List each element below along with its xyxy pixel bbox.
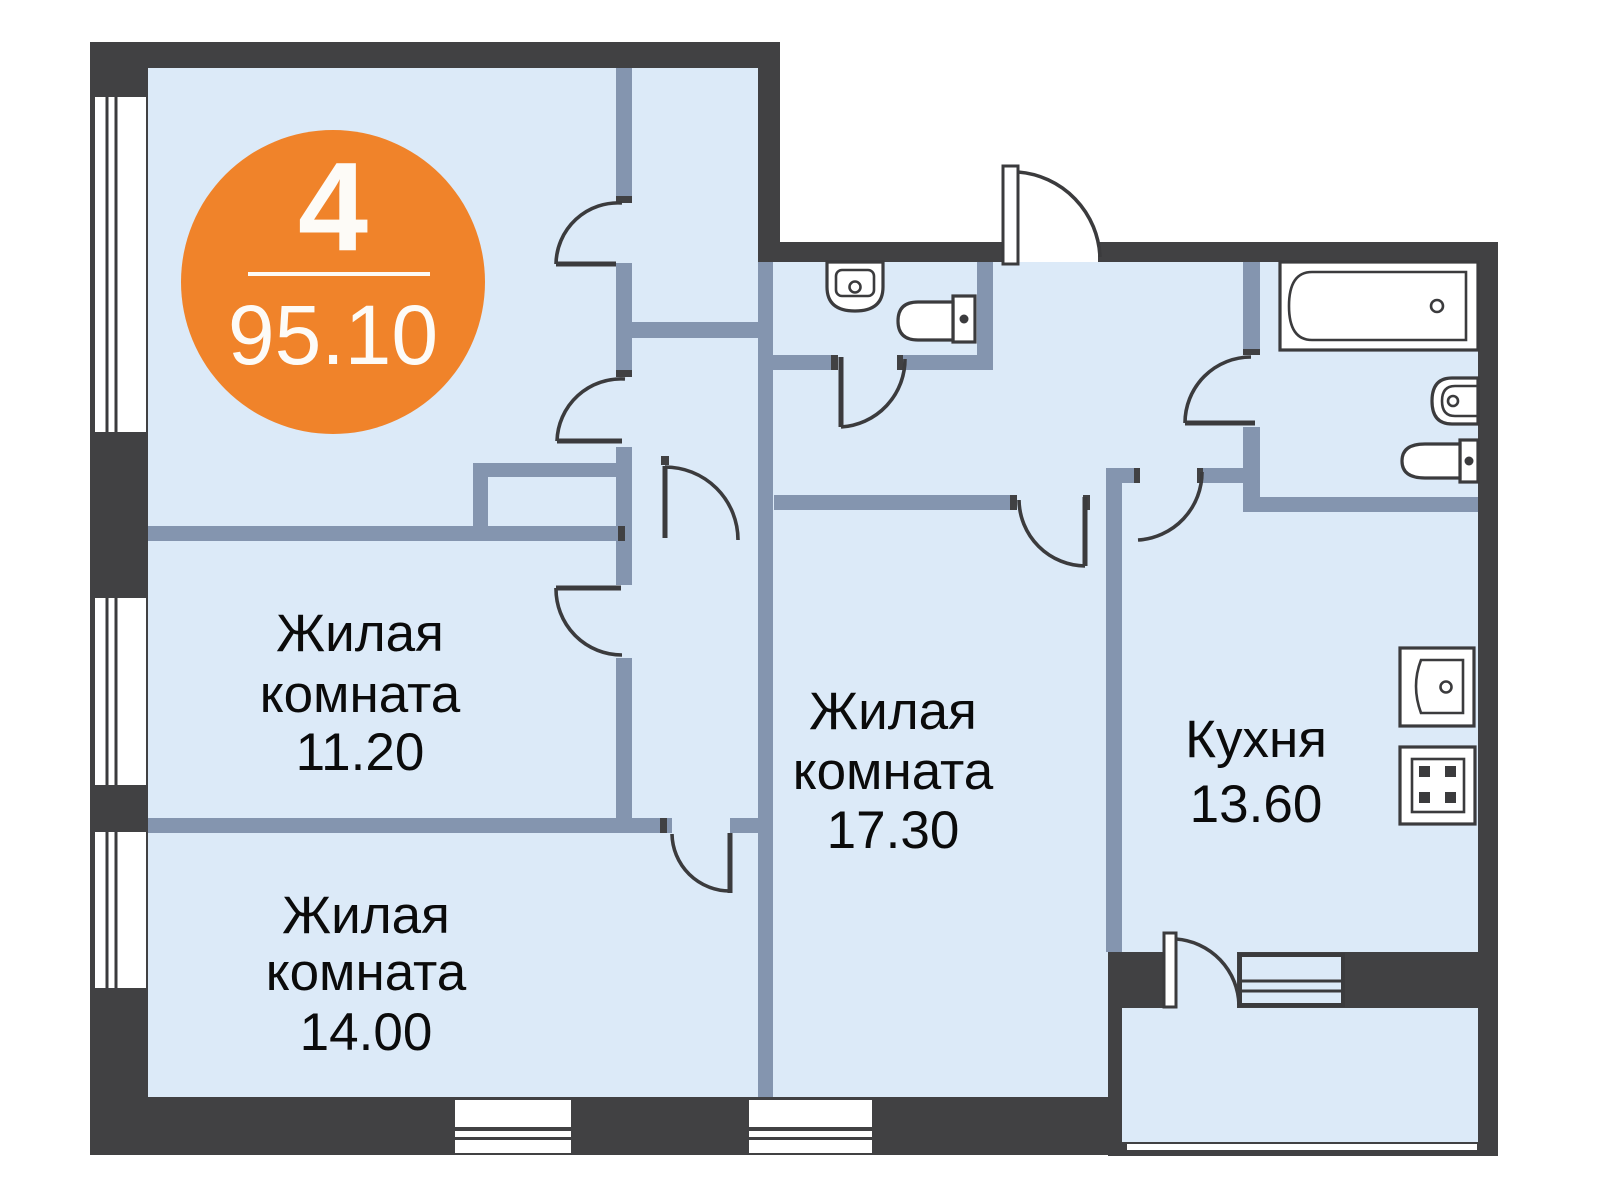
svg-text:комната: комната <box>266 943 467 1002</box>
badge-total-area: 95.10 <box>228 288 438 382</box>
svg-text:Жилая: Жилая <box>282 886 450 945</box>
svg-text:Кухня: Кухня <box>1185 710 1327 769</box>
svg-text:11.20: 11.20 <box>296 723 425 782</box>
svg-text:Жилая: Жилая <box>276 604 444 663</box>
kitchen-balcony-window <box>1240 955 1343 1005</box>
badge-rooms-count: 4 <box>298 136 368 277</box>
balcony-floor <box>1122 1008 1478 1143</box>
svg-text:Жилая: Жилая <box>809 682 977 741</box>
floor-plan-canvas: 4 95.10 Жилая комната 11.20 Жилая комнат… <box>0 0 1600 1200</box>
balcony-glazing <box>1127 1144 1477 1150</box>
bathtub-icon <box>1280 262 1478 350</box>
badge-divider <box>248 272 430 276</box>
svg-text:13.60: 13.60 <box>1190 775 1323 834</box>
entrance-door <box>1003 166 1100 264</box>
window-icon <box>95 97 146 432</box>
svg-text:14.00: 14.00 <box>300 1003 433 1062</box>
kitchen-sink-icon <box>1400 648 1474 726</box>
window-icon <box>455 1100 571 1153</box>
area-badge: 4 95.10 <box>181 130 485 434</box>
toilet-icon <box>1402 440 1478 482</box>
toilet-icon <box>898 296 975 342</box>
sink-icon <box>827 262 883 311</box>
window-icon <box>749 1100 872 1153</box>
window-icon <box>95 598 146 785</box>
sink-icon <box>1432 378 1478 424</box>
floor-plan: 4 95.10 Жилая комната 11.20 Жилая комнат… <box>0 0 1600 1200</box>
svg-text:17.30: 17.30 <box>827 801 960 860</box>
svg-text:комната: комната <box>260 665 461 724</box>
svg-text:комната: комната <box>793 742 994 801</box>
window-icon <box>95 832 146 988</box>
stove-icon <box>1400 747 1475 824</box>
